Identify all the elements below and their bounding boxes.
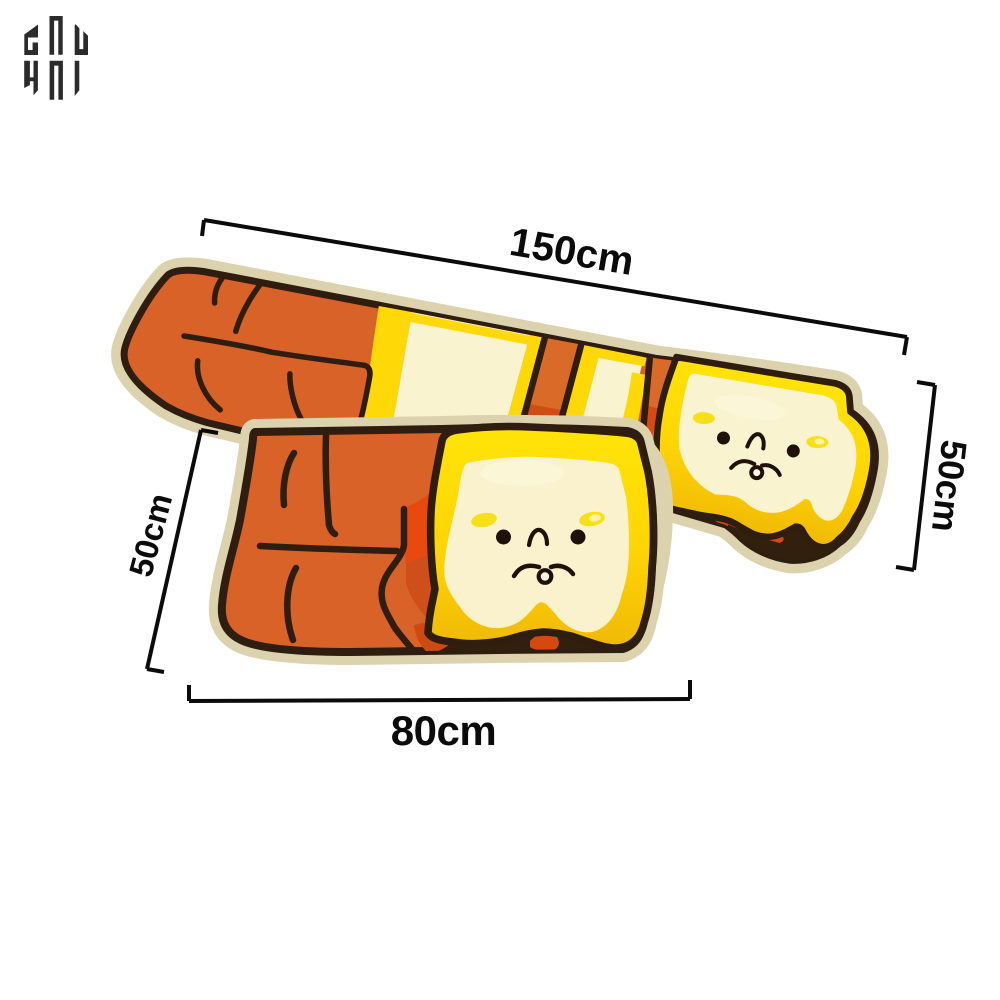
svg-text:80cm: 80cm	[391, 707, 496, 754]
svg-text:50cm: 50cm	[924, 438, 975, 534]
